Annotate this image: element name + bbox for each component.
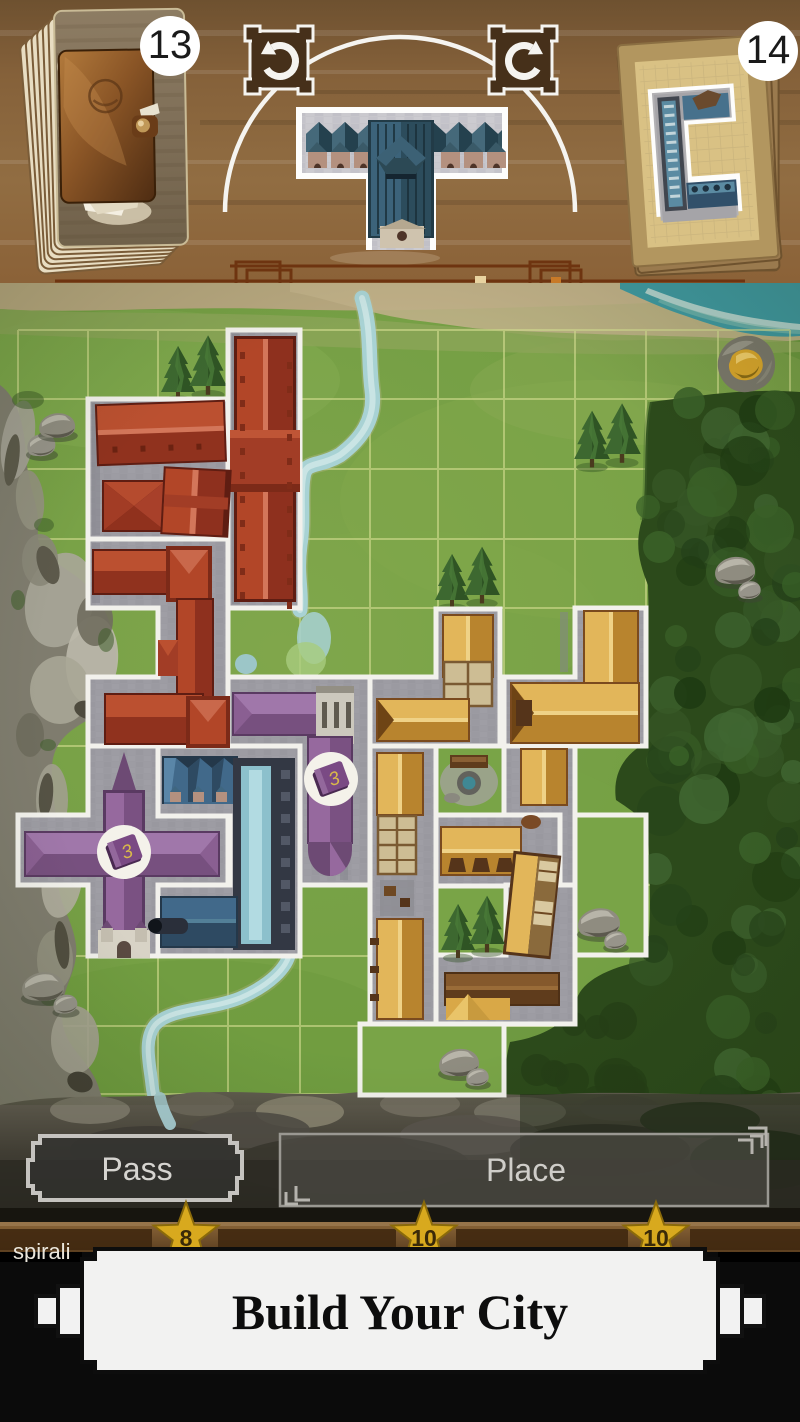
svg-text:14: 14 [746, 28, 791, 72]
svg-text:13: 13 [148, 23, 193, 67]
svg-text:spirali: spirali [13, 1239, 70, 1264]
svg-text:Pass: Pass [101, 1151, 172, 1187]
svg-text:Build Your City: Build Your City [232, 1284, 568, 1340]
svg-text:Place: Place [486, 1152, 566, 1188]
